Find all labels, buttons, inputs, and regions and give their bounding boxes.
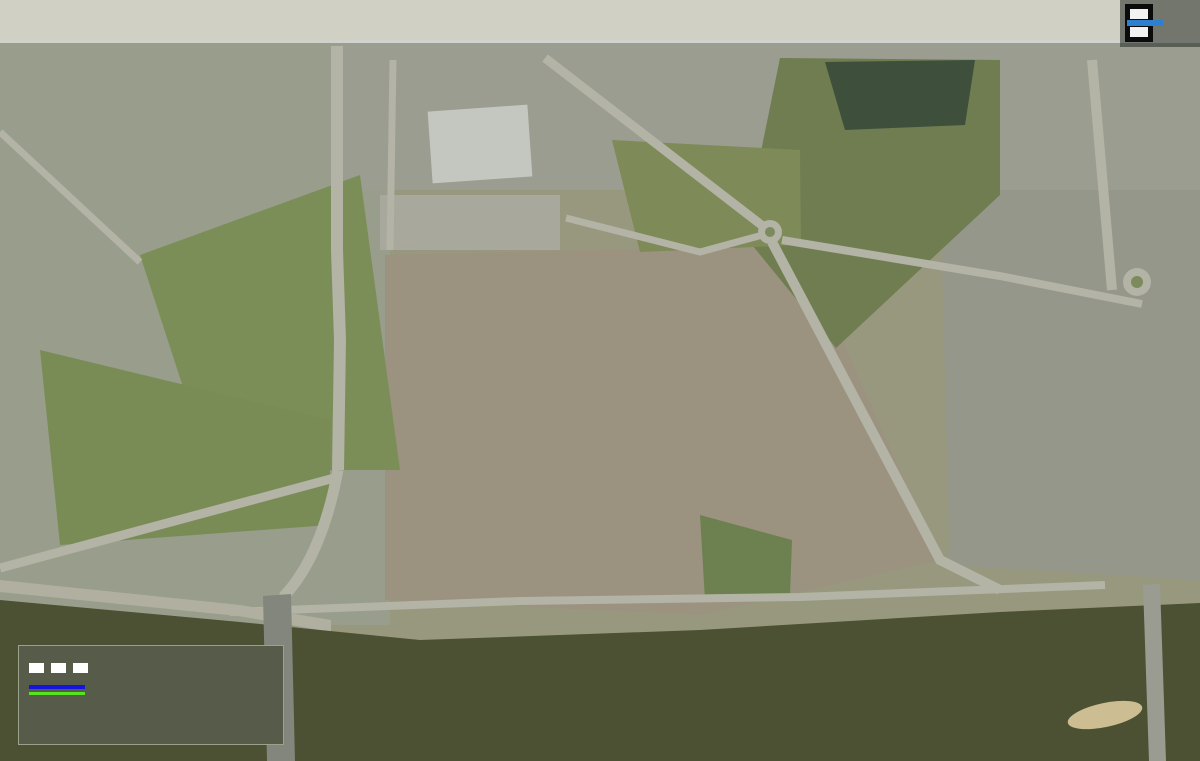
map-screenshot [0, 0, 1200, 761]
legend-item-plan-boundary [29, 663, 273, 673]
publisher-logo [1120, 0, 1200, 47]
legend [18, 645, 284, 745]
legend-item-quarter-borders [29, 685, 273, 695]
plan-boundary-swatch [29, 663, 95, 673]
title-band [0, 0, 1200, 43]
mpu-logo-icon [1125, 4, 1153, 42]
quarter-borders-swatch [29, 685, 95, 695]
